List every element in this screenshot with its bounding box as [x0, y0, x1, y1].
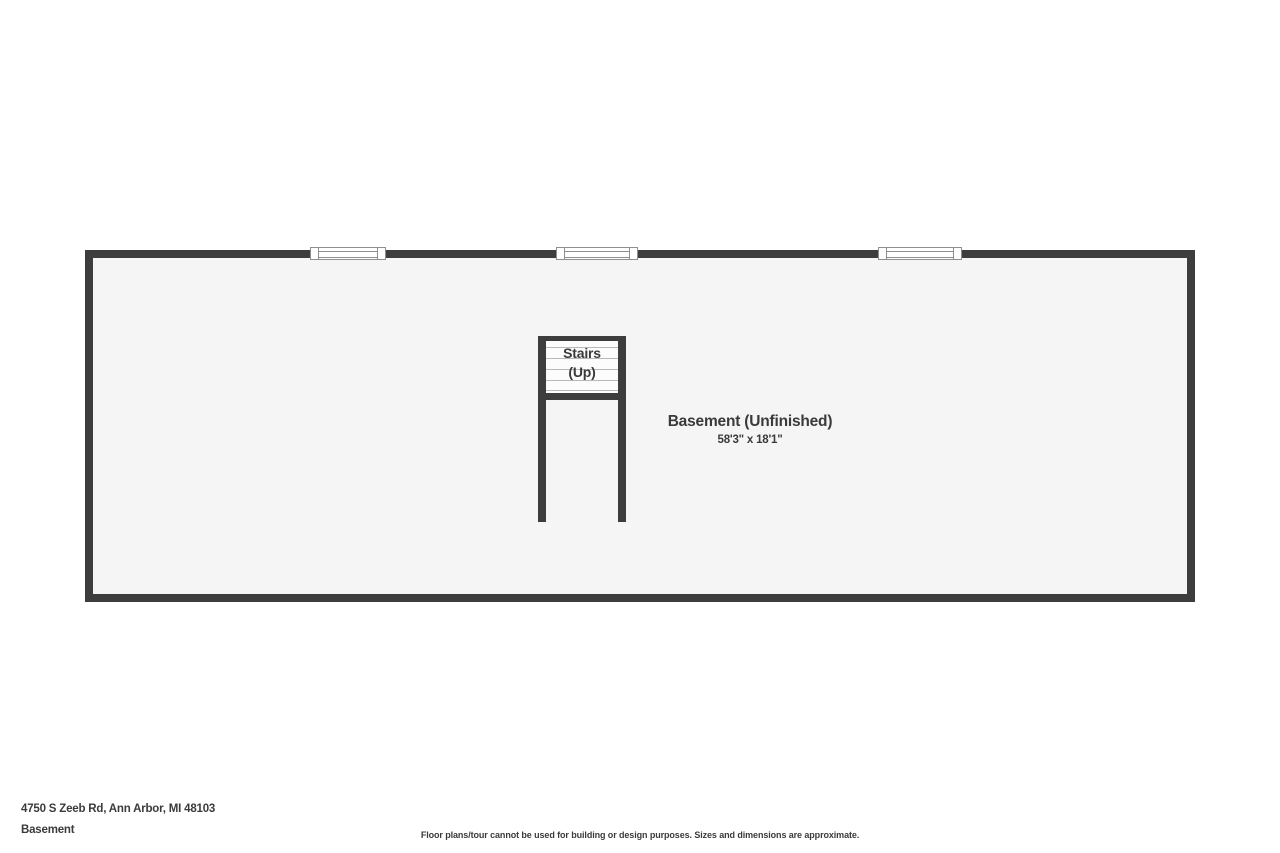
window-frame-cap [629, 248, 630, 259]
stairs-label: Stairs (Up) [538, 344, 626, 382]
room-label: Basement (Unfinished) 58'3" x 18'1" [640, 413, 860, 446]
property-address: 4750 S Zeeb Rd, Ann Arbor, MI 48103 [21, 803, 215, 815]
stairwell-wall-divider [538, 393, 626, 400]
stairs-label-line2: (Up) [568, 364, 595, 380]
room-name: Basement (Unfinished) [640, 413, 860, 431]
window-pane [319, 251, 377, 258]
stairwell-wall-top [538, 336, 626, 341]
window-frame-cap [377, 248, 378, 259]
window-pane [887, 251, 953, 258]
stair-tread-line [546, 390, 618, 391]
window [556, 247, 638, 260]
window [878, 247, 962, 260]
room-dimensions: 58'3" x 18'1" [640, 434, 860, 446]
stairs-label-line1: Stairs [563, 345, 601, 361]
window-pane [565, 251, 629, 258]
disclaimer-text: Floor plans/tour cannot be used for buil… [0, 830, 1280, 840]
floor-plan-page: Stairs (Up) Basement (Unfinished) 58'3" … [0, 0, 1280, 853]
window [310, 247, 386, 260]
window-frame-cap [953, 248, 954, 259]
